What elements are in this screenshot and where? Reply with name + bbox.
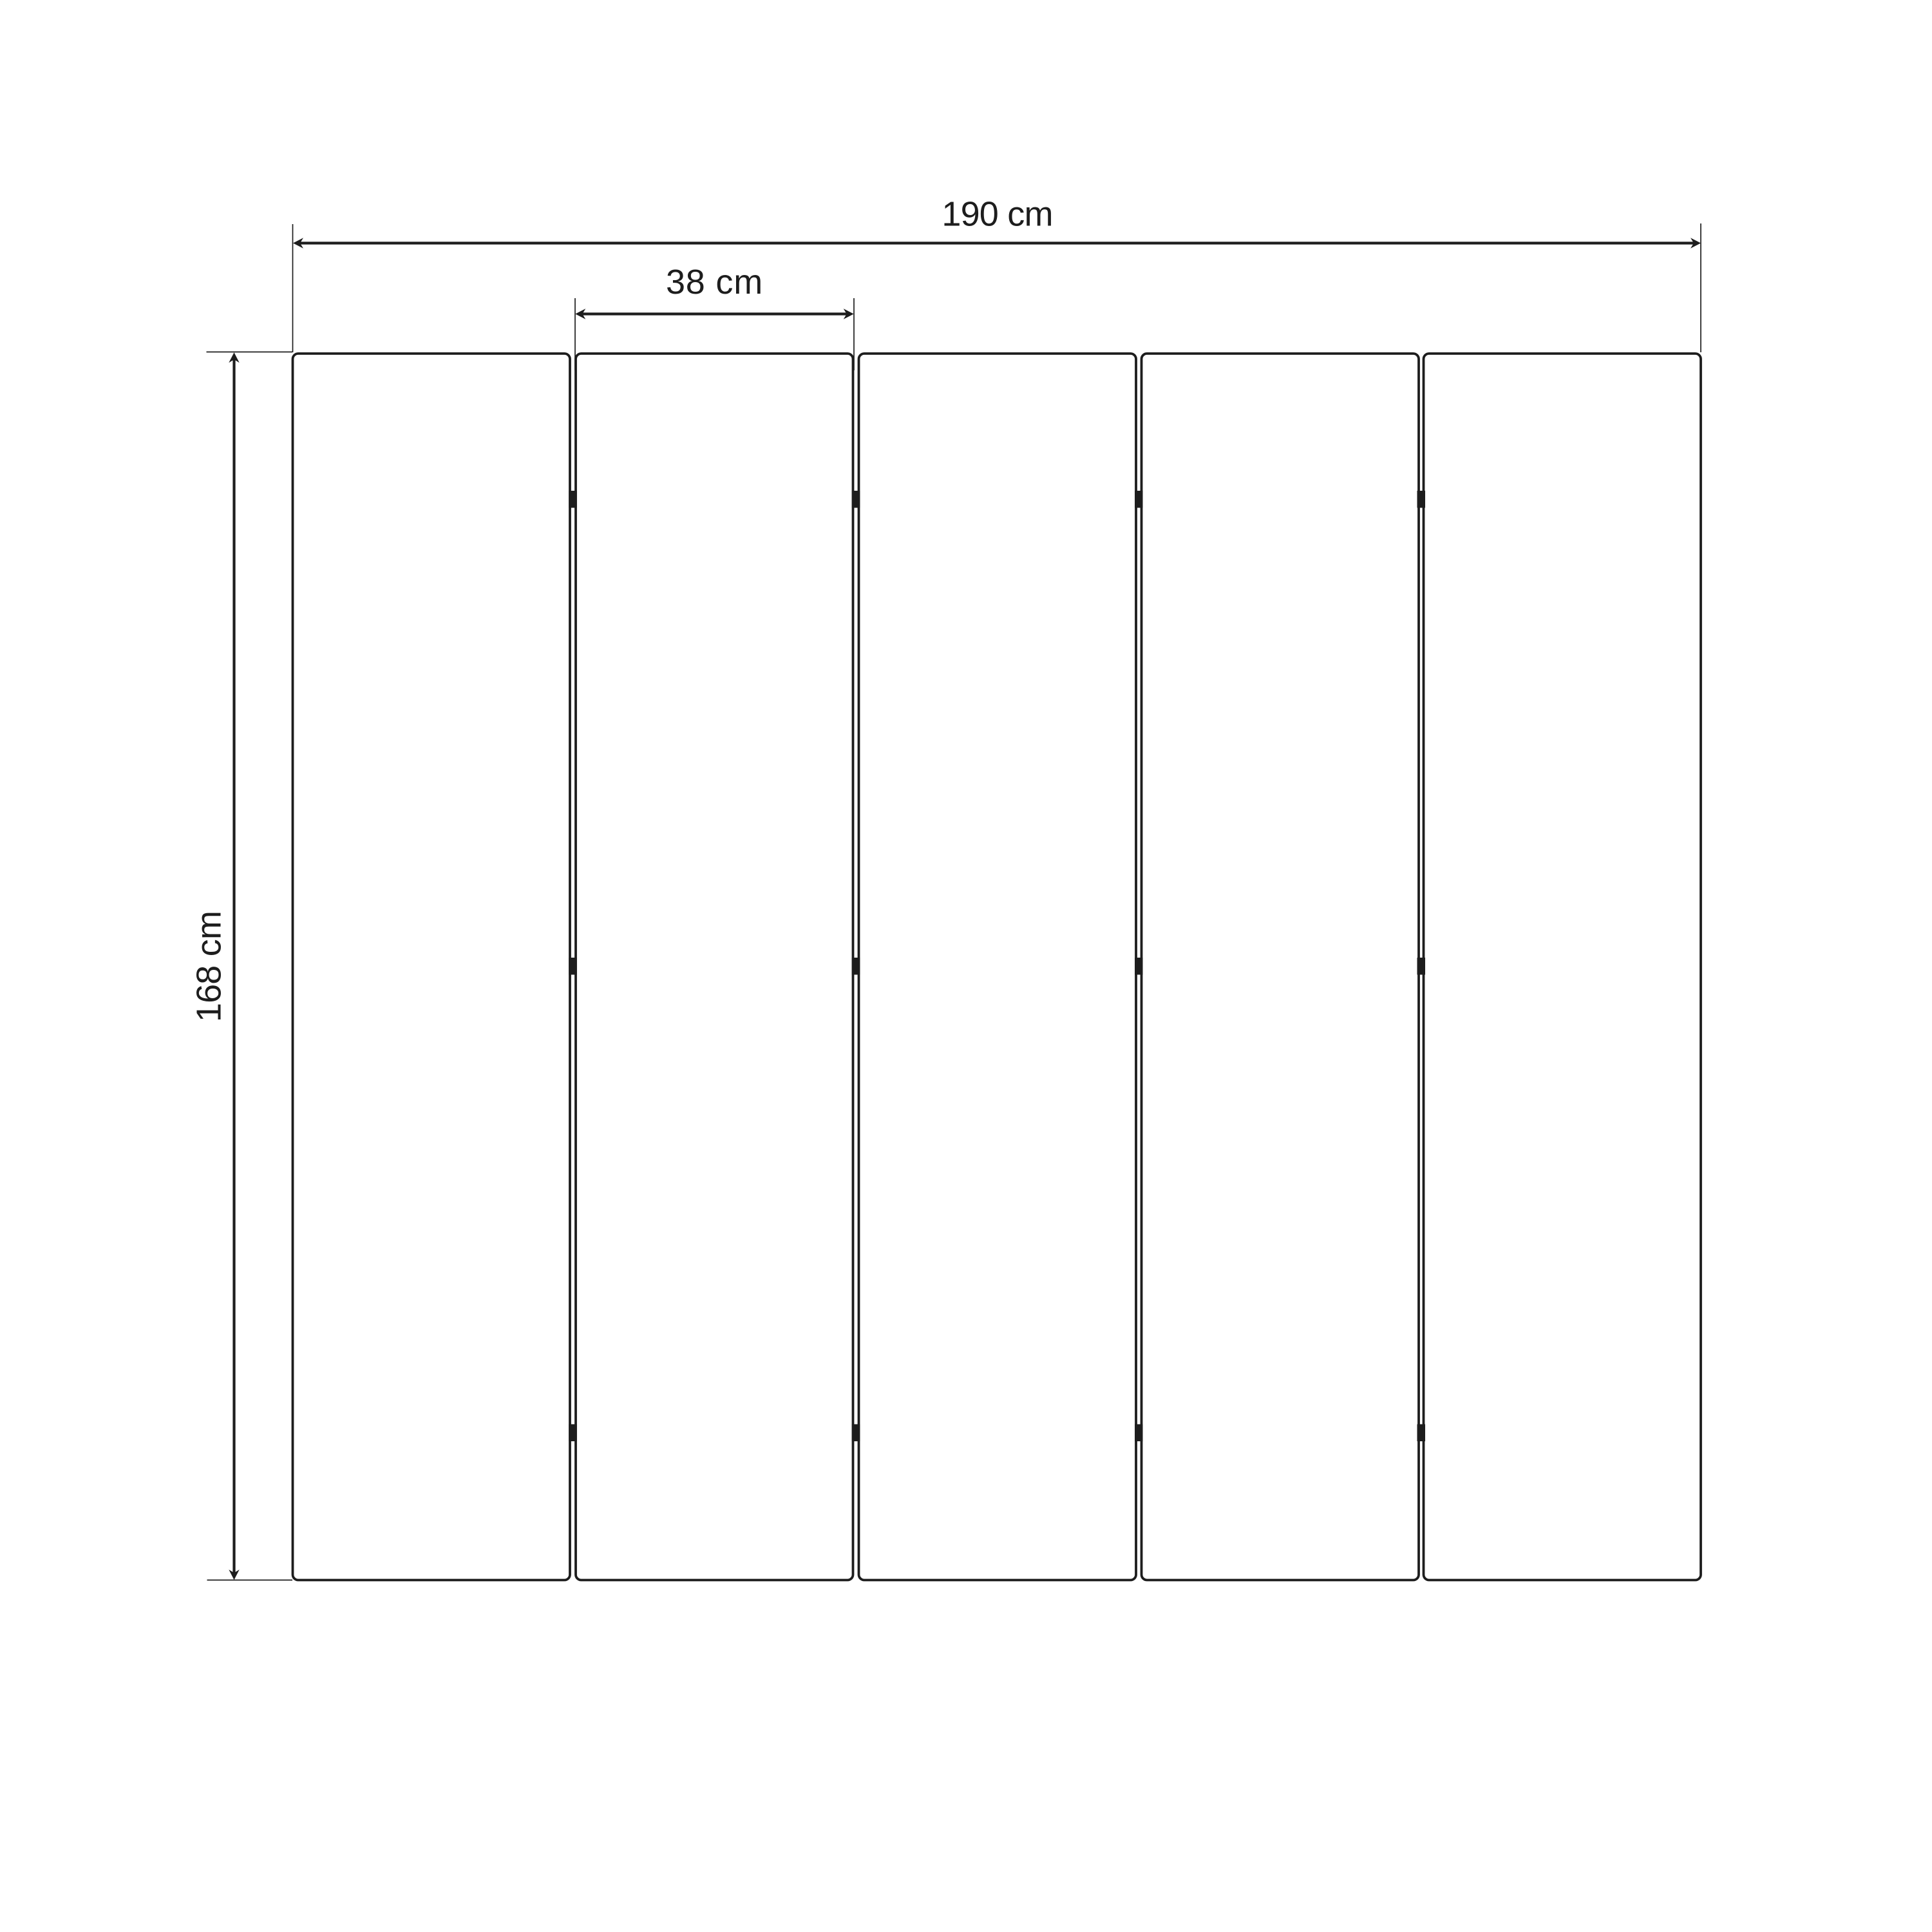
svg-text:190 cm: 190 cm (942, 195, 1052, 234)
svg-text:168 cm: 168 cm (190, 911, 229, 1022)
svg-text:38 cm: 38 cm (666, 263, 763, 301)
